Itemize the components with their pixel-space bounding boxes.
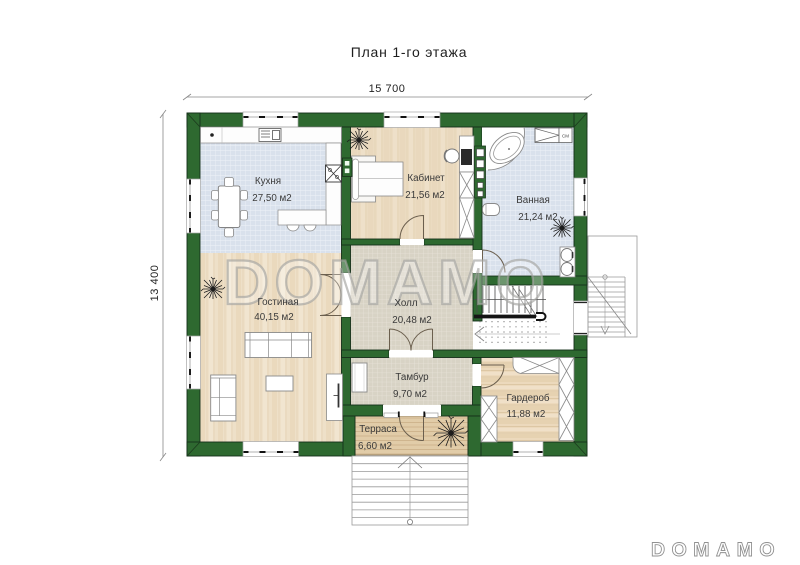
- svg-text:DOMAMO: DOMAMO: [651, 539, 781, 561]
- svg-text:11,88 м2: 11,88 м2: [507, 409, 546, 420]
- svg-text:Гардероб: Гардероб: [506, 393, 549, 404]
- svg-text:6,60 м2: 6,60 м2: [358, 441, 392, 452]
- svg-text:Кабинет: Кабинет: [407, 173, 445, 184]
- svg-text:13 400: 13 400: [149, 265, 161, 302]
- svg-text:27,50 м2: 27,50 м2: [252, 193, 291, 204]
- svg-text:9,70 м2: 9,70 м2: [393, 389, 427, 400]
- svg-text:Кухня: Кухня: [255, 176, 281, 187]
- svg-text:План 1-го этажа: План 1-го этажа: [351, 44, 468, 60]
- svg-text:20,48 м2: 20,48 м2: [392, 315, 431, 326]
- svg-text:Гостиная: Гостиная: [257, 297, 298, 308]
- svg-text:Ванная: Ванная: [516, 195, 550, 206]
- svg-text:40,15 м2: 40,15 м2: [254, 312, 293, 323]
- svg-text:15 700: 15 700: [369, 83, 406, 95]
- svg-text:Терраса: Терраса: [359, 424, 397, 435]
- svg-text:СМ: СМ: [562, 134, 569, 139]
- svg-text:Тамбур: Тамбур: [395, 372, 429, 383]
- svg-text:21,56 м2: 21,56 м2: [405, 190, 444, 201]
- svg-text:Холл: Холл: [394, 298, 417, 309]
- svg-text:21,24 м2: 21,24 м2: [518, 212, 557, 223]
